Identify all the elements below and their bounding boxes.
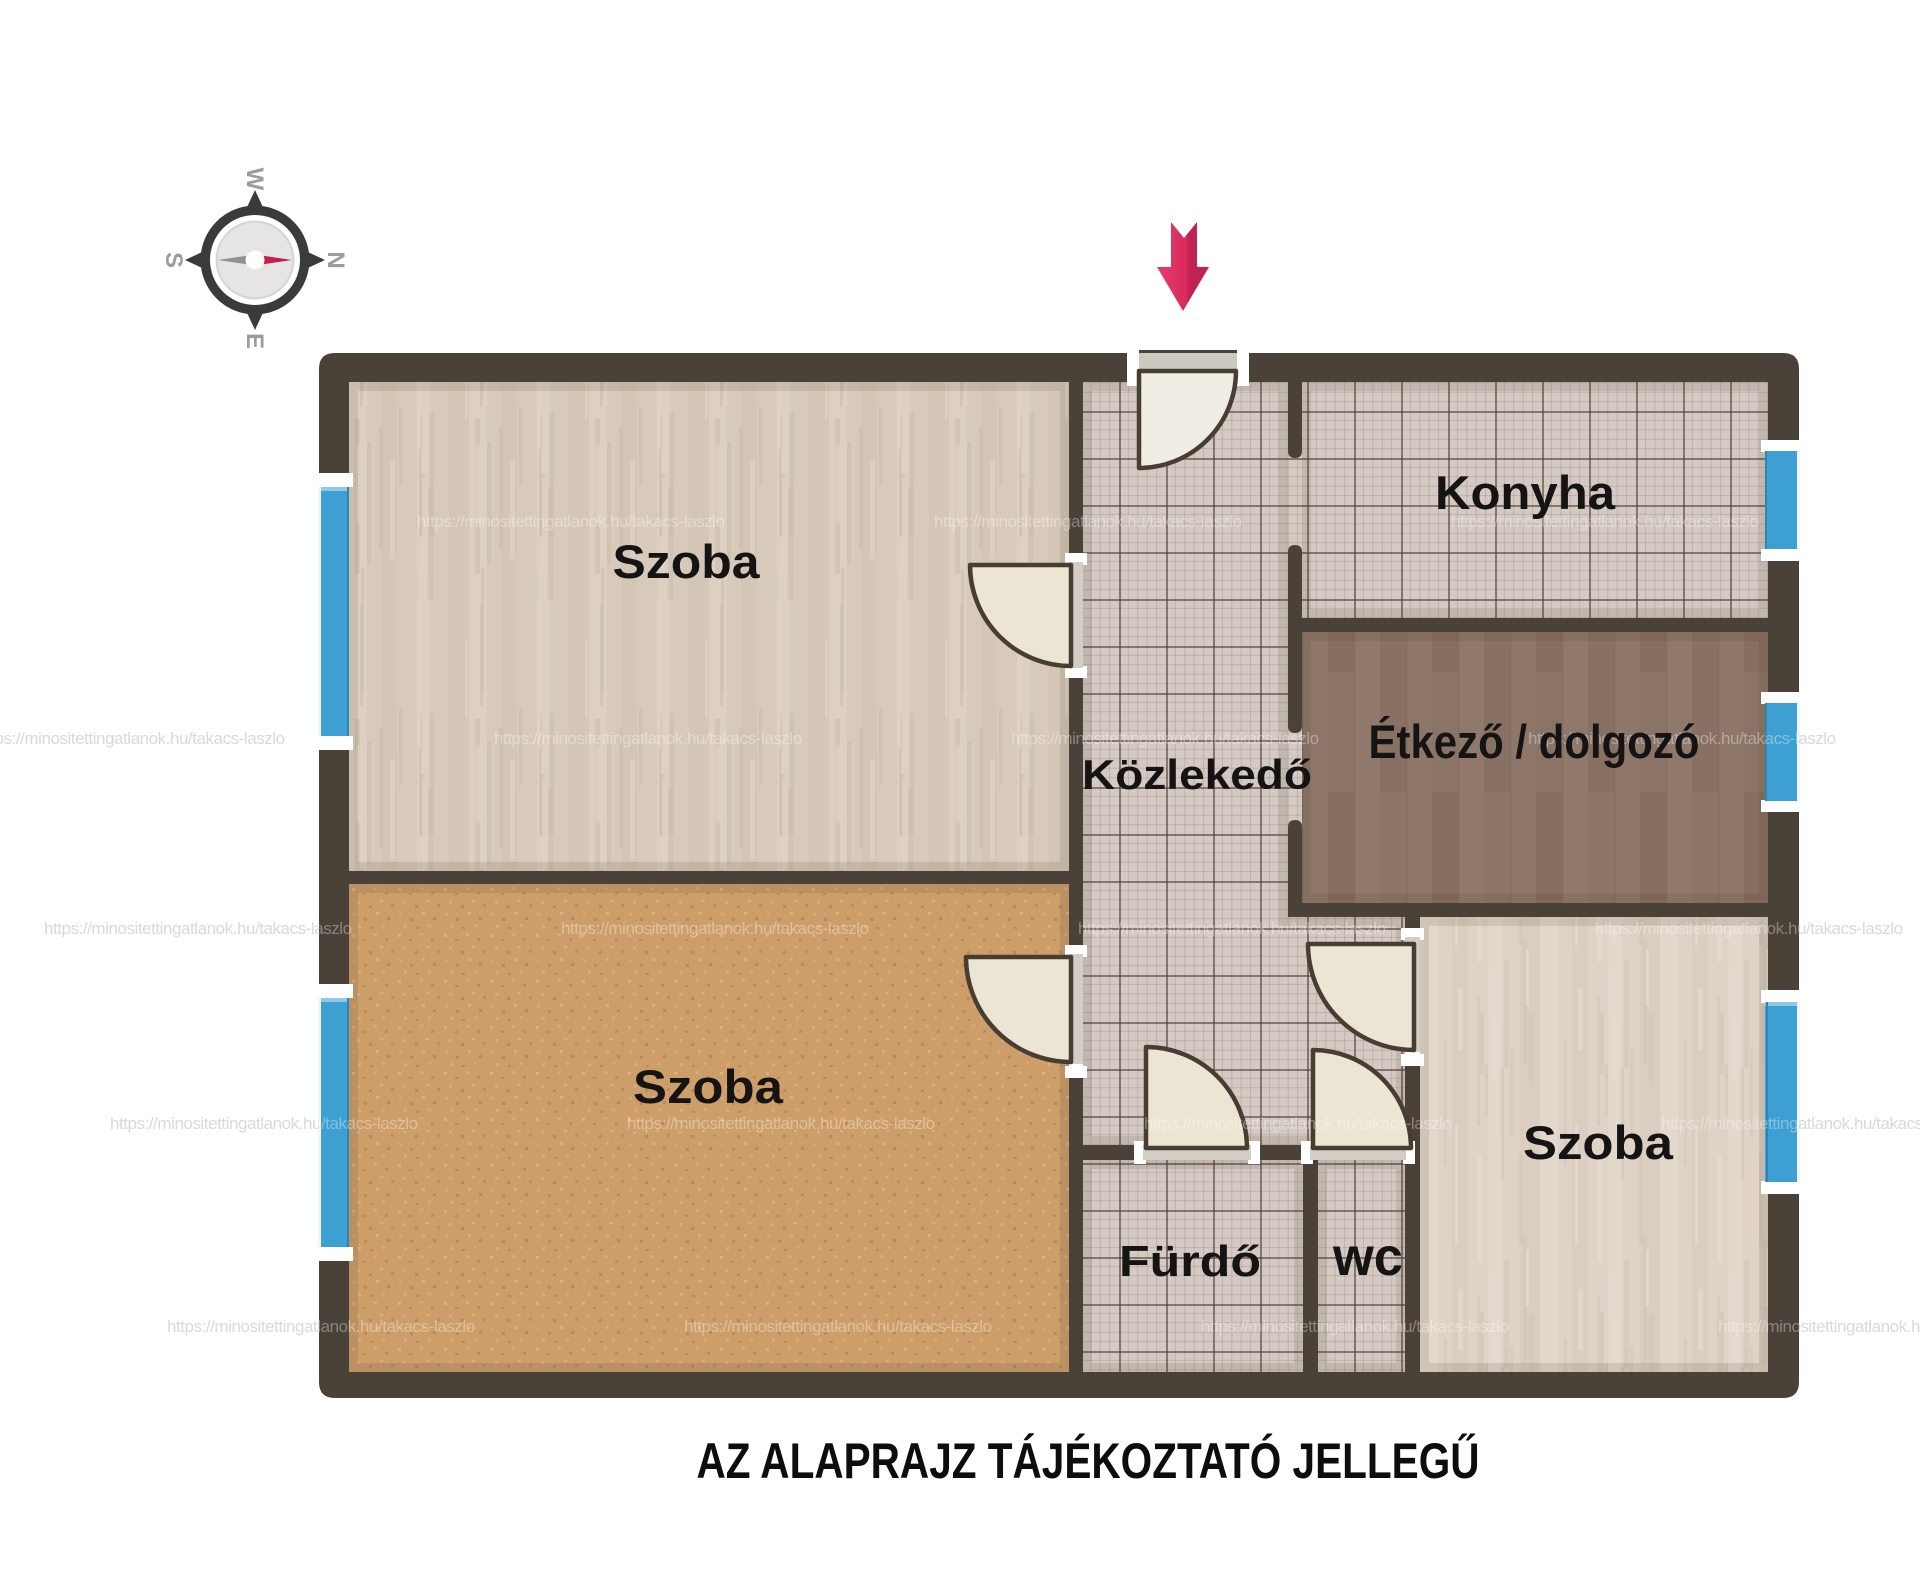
svg-text:S: S (160, 252, 187, 268)
svg-text:https://minositettingatlanok.h: https://minositettingatlanok.hu/takacs-l… (684, 1317, 992, 1336)
svg-text:https://minositettingatlanok.h: https://minositettingatlanok.hu/takacs-l… (1201, 1317, 1509, 1336)
svg-text:wc: wc (1332, 1227, 1403, 1287)
svg-text:https://minositettingatlanok.h: https://minositettingatlanok.hu/takacs-l… (561, 919, 869, 938)
svg-text:https://minositettingatlanok.h: https://minositettingatlanok.hu/takacs-l… (1144, 1114, 1452, 1133)
svg-text:Szoba: Szoba (1523, 1116, 1674, 1169)
svg-text:AZ ALAPRAJZ TÁJÉKOZTATÓ JELLEG: AZ ALAPRAJZ TÁJÉKOZTATÓ JELLEGŰ (697, 1433, 1480, 1489)
svg-text:Fürdő: Fürdő (1119, 1237, 1261, 1286)
svg-text:https://minositettingatlanok.h: https://minositettingatlanok.hu/takacs-l… (627, 1114, 935, 1133)
svg-text:https://minositettingatlanok.h: https://minositettingatlanok.hu/takacs-l… (44, 919, 352, 938)
svg-text:https://minositettingatlanok.h: https://minositettingatlanok.hu/takacs-l… (1011, 729, 1319, 748)
svg-text:Szoba: Szoba (633, 1060, 784, 1113)
svg-text:W: W (241, 168, 268, 191)
svg-text:https://minositettingatlanok.h: https://minositettingatlanok.hu/takacs-l… (494, 729, 802, 748)
svg-text:Konyha: Konyha (1435, 466, 1616, 519)
svg-text:E: E (241, 333, 268, 349)
svg-text:https://minositettingatlanok.h: https://minositettingatlanok.hu/takacs-l… (1078, 919, 1386, 938)
svg-text:https://minositettingatlanok.h: https://minositettingatlanok.hu/takacs-l… (0, 729, 285, 748)
svg-text:N: N (322, 251, 349, 268)
svg-text:https://minositettingatlanok.h: https://minositettingatlanok.hu/takacs-l… (417, 512, 725, 531)
svg-text:Közlekedő: Közlekedő (1082, 751, 1312, 798)
svg-text:Étkező / dolgozó: Étkező / dolgozó (1369, 715, 1700, 768)
svg-text:Szoba: Szoba (613, 535, 761, 588)
svg-text:https://minositettingatlanok.h: https://minositettingatlanok.hu/takacs-l… (934, 512, 1242, 531)
